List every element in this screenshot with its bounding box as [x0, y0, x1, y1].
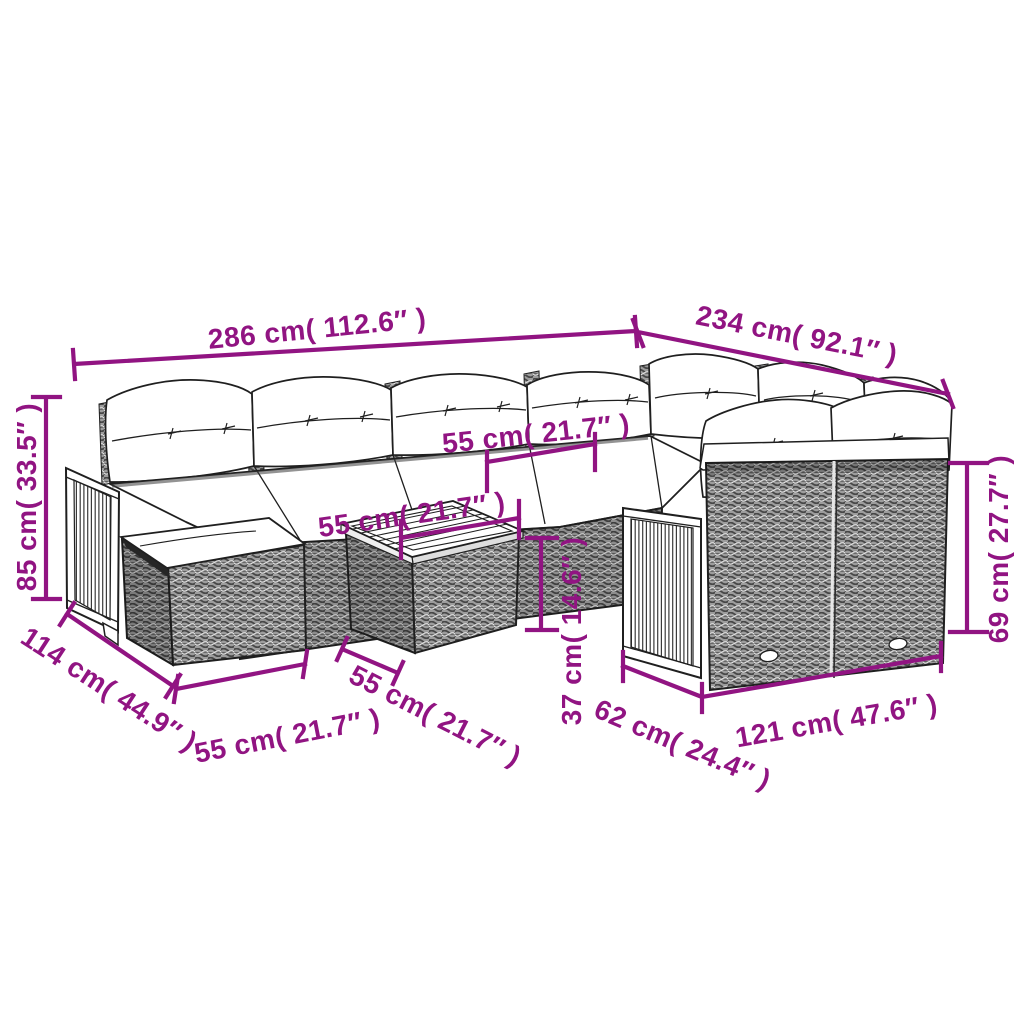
corner-wood-panel — [623, 508, 701, 678]
dimension-label: 37 cm( 14.6″ ) — [556, 537, 587, 726]
wicker-front — [706, 459, 948, 690]
dimension-footstool-width: 55 cm( 21.7″ ) — [174, 651, 383, 769]
panel-slats — [631, 519, 693, 666]
panel-slats — [74, 480, 111, 620]
dimension-label: 55 cm( 21.7″ ) — [192, 702, 383, 768]
screenshot: 286 cm( 112.6″ ) 234 cm( 92.1″ ) 85 cm( … — [0, 0, 1024, 1024]
dimension-label: 85 cm( 33.5″ ) — [11, 403, 42, 592]
dimension-label: 121 cm( 47.6″ ) — [733, 688, 940, 753]
front-right-sofa — [700, 391, 952, 690]
back-cushion — [252, 377, 393, 467]
dimension-front-sofa-height: 69 cm( 27.7″ ) — [950, 455, 1014, 644]
footstool — [121, 518, 306, 665]
sofa-set-illustration — [66, 354, 952, 690]
dimension-line — [950, 463, 987, 632]
dimension-back-width: 286 cm( 112.6″ ) — [73, 302, 637, 379]
dimension-back-height: 85 cm( 33.5″ ) — [11, 397, 60, 599]
product-dimension-diagram: 286 cm( 112.6″ ) 234 cm( 92.1″ ) 85 cm( … — [0, 0, 1024, 1024]
dimension-label: 69 cm( 27.7″ ) — [983, 455, 1014, 644]
